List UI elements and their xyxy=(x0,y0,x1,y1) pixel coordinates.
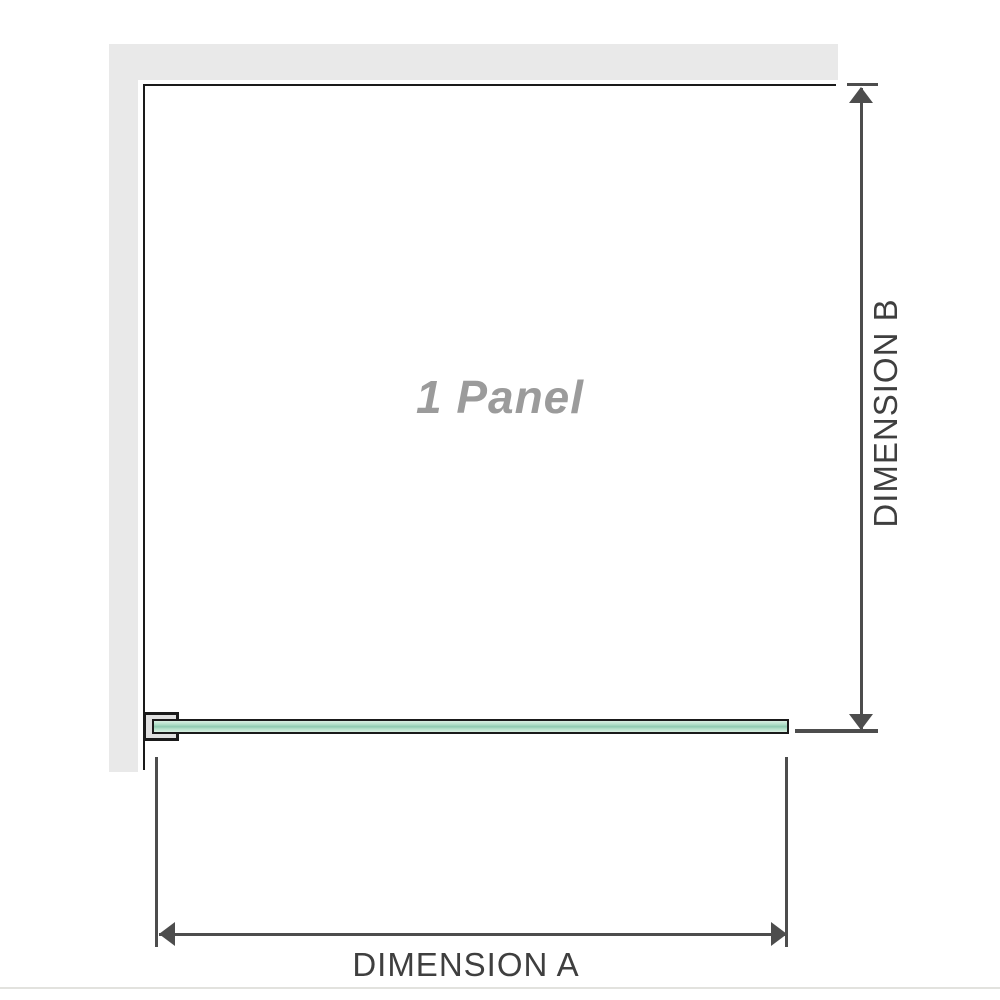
dimension-a-right-extension-line xyxy=(785,757,788,947)
arrow-left-icon xyxy=(159,922,175,946)
dimension-a-label: DIMENSION A xyxy=(352,946,579,984)
dimension-b-bottom-tick xyxy=(795,729,878,733)
panel-outline-top-edge xyxy=(143,84,836,86)
shower-panel-diagram: 1 Panel DIMENSION B DIMENSION A xyxy=(0,0,1000,1000)
arrow-down-icon xyxy=(849,714,873,730)
dimension-a-left-extension-line xyxy=(155,757,158,947)
dimension-b-line xyxy=(860,88,863,731)
arrow-right-icon xyxy=(771,922,787,946)
dimension-b-label: DIMENSION B xyxy=(867,298,905,527)
arrow-up-icon xyxy=(849,87,873,103)
wall-left-bar xyxy=(109,44,138,772)
dimension-b-top-tick xyxy=(847,83,878,86)
wall-top-bar xyxy=(109,44,838,80)
panel-count-label: 1 Panel xyxy=(416,370,584,424)
panel-outline-left-edge xyxy=(143,84,145,770)
glass-panel-bar xyxy=(152,719,789,734)
page-bottom-rule xyxy=(0,987,1000,989)
dimension-a-line xyxy=(159,933,787,936)
